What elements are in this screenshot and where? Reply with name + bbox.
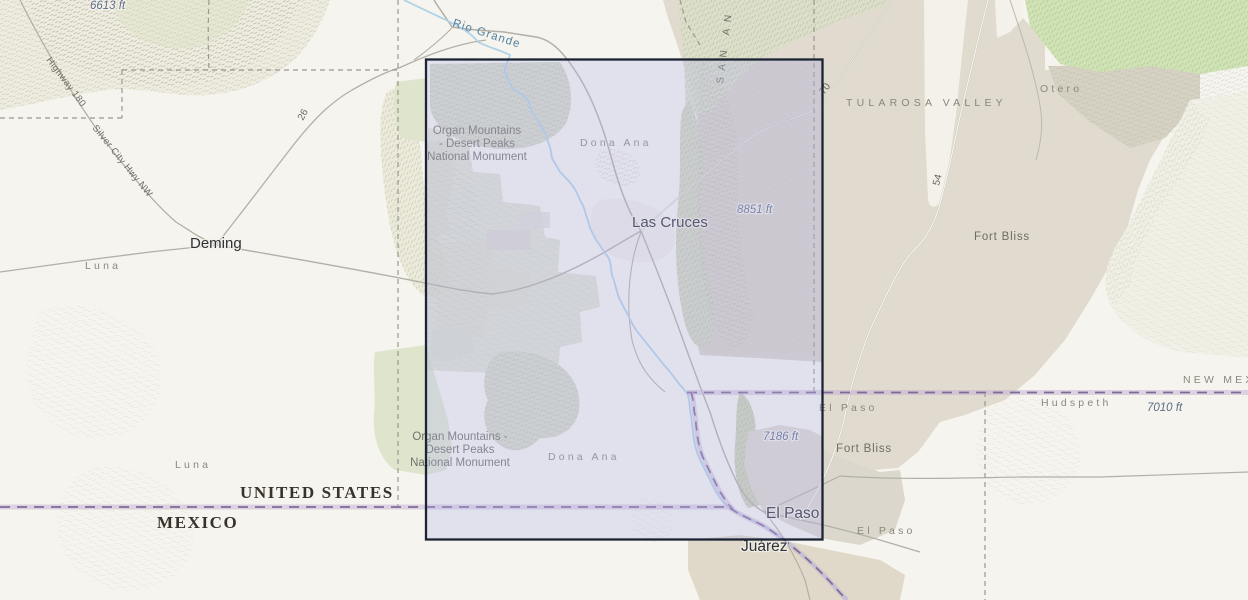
svg-text:Hudspeth: Hudspeth — [1041, 397, 1112, 409]
svg-text:7010 ft: 7010 ft — [1147, 402, 1183, 414]
svg-text:Fort Bliss: Fort Bliss — [974, 231, 1030, 243]
svg-text:Deming: Deming — [190, 235, 242, 252]
svg-text:UNITED STATES: UNITED STATES — [240, 483, 394, 502]
svg-text:MEXICO: MEXICO — [157, 513, 238, 532]
svg-text:El Paso: El Paso — [819, 402, 878, 414]
svg-text:Luna: Luna — [175, 459, 211, 471]
svg-text:NEW MEXI: NEW MEXI — [1183, 374, 1248, 386]
svg-text:6613 ft: 6613 ft — [90, 0, 126, 12]
svg-text:Otero: Otero — [1040, 83, 1082, 95]
svg-text:Luna: Luna — [85, 260, 121, 272]
svg-text:Fort Bliss: Fort Bliss — [836, 443, 892, 455]
svg-text:TULAROSA VALLEY: TULAROSA VALLEY — [846, 97, 1007, 109]
svg-text:El Paso: El Paso — [857, 525, 916, 537]
